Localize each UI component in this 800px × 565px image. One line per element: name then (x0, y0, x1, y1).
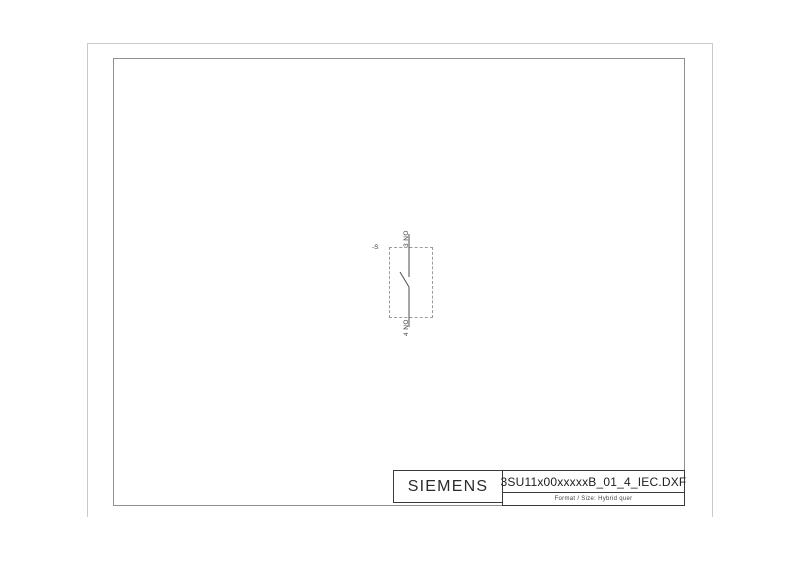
format-size-label: Format / Size: Hybrid quer (502, 492, 685, 506)
title-block-right-column: 3SU11x00xxxxxB_01_4_IEC.DXF Format / Siz… (502, 470, 685, 506)
terminal-label-bottom: 4 NO (403, 319, 410, 336)
contact-lines (395, 230, 425, 330)
terminal-label-top: 3 NO (403, 230, 410, 247)
siemens-logo: SIEMENS (393, 470, 503, 503)
title-block: SIEMENS 3SU11x00xxxxxB_01_4_IEC.DXF Form… (393, 470, 685, 506)
device-tag-label: -S (372, 244, 379, 251)
contact-blade-line (400, 272, 409, 287)
drawing-sheet: 3 NO 4 NO -S SIEMENS 3SU11x00xxxxxB_01_4… (0, 0, 800, 565)
drawing-filename: 3SU11x00xxxxxB_01_4_IEC.DXF (502, 470, 685, 493)
